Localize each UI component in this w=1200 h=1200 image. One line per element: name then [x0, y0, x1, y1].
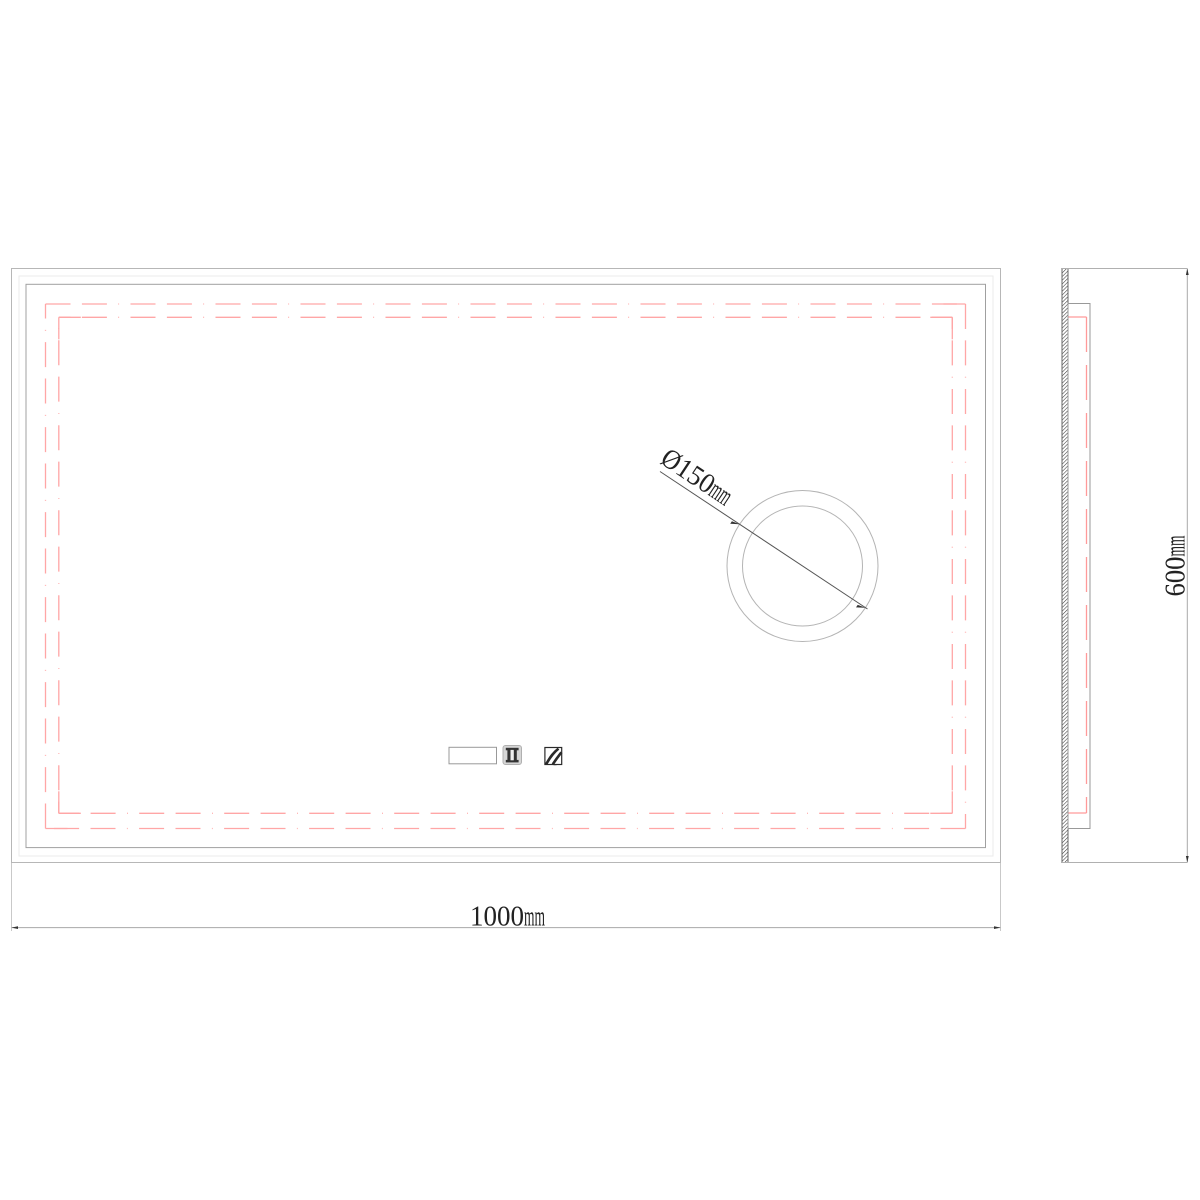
svg-text:600mm: 600mm: [1161, 535, 1192, 596]
svg-text:1000mm: 1000mm: [470, 902, 545, 933]
